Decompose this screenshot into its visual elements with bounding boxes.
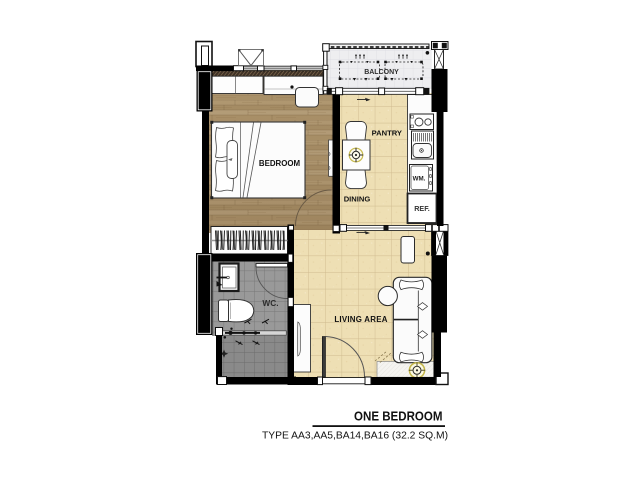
svg-text:PANTRY: PANTRY bbox=[372, 129, 402, 138]
svg-text:BEDROOM: BEDROOM bbox=[259, 159, 301, 168]
svg-text:ONE BEDROOM: ONE BEDROOM bbox=[354, 410, 443, 424]
svg-text:DINING: DINING bbox=[344, 195, 371, 204]
svg-text:TYPE AA3,AA5,BA14,BA16 (32.2: TYPE AA3,AA5,BA14,BA16 (32.2 SQ.M) bbox=[262, 431, 448, 442]
svg-text:LIVING AREA: LIVING AREA bbox=[334, 315, 387, 324]
svg-text:REF.: REF. bbox=[414, 204, 430, 213]
svg-text:WC.: WC. bbox=[262, 298, 278, 308]
svg-text:WM.: WM. bbox=[413, 176, 426, 183]
svg-text:BALCONY: BALCONY bbox=[364, 69, 399, 76]
